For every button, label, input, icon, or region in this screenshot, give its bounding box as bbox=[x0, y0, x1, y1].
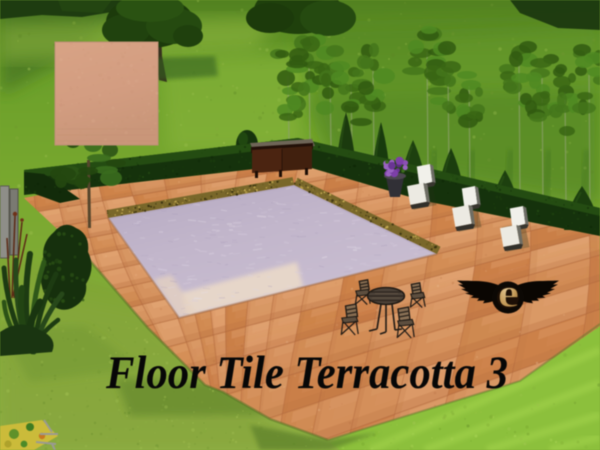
svg-text:e: e bbox=[498, 271, 520, 316]
svg-text:Floor Tile Terracotta 3: Floor Tile Terracotta 3 bbox=[105, 347, 508, 399]
